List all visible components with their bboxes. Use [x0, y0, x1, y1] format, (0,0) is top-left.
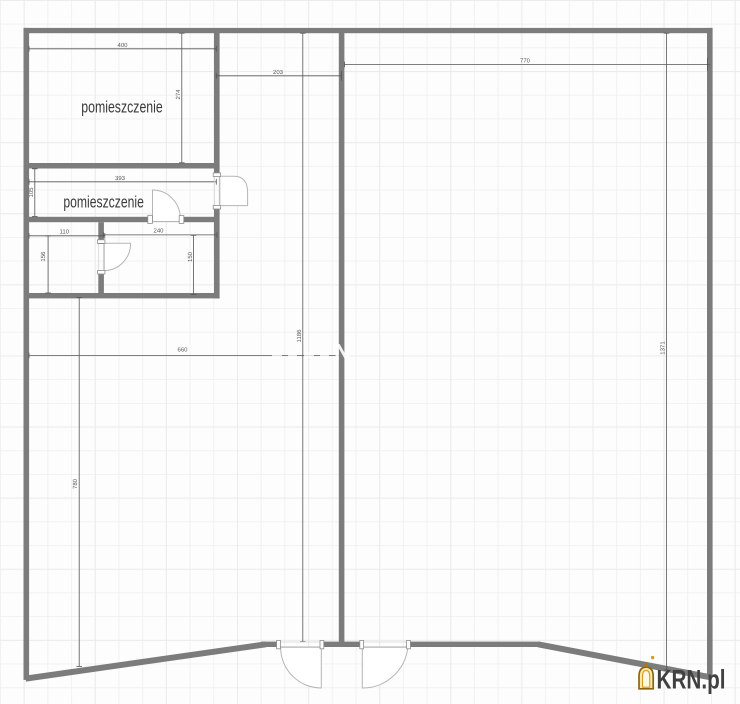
svg-text:105: 105 — [28, 187, 35, 198]
svg-text:1371: 1371 — [660, 341, 667, 355]
svg-text:274: 274 — [175, 89, 182, 100]
svg-text:393: 393 — [115, 175, 126, 182]
svg-text:110: 110 — [60, 229, 70, 236]
svg-text:1186: 1186 — [296, 329, 303, 343]
svg-text:240: 240 — [153, 228, 164, 235]
svg-text:pomieszczenie: pomieszczenie — [81, 98, 163, 117]
svg-text:770: 770 — [520, 58, 531, 65]
svg-text:150: 150 — [187, 251, 194, 262]
svg-text:660: 660 — [177, 347, 188, 354]
svg-text:203: 203 — [273, 69, 284, 76]
svg-text:780: 780 — [72, 478, 79, 489]
svg-text:pomieszczenie: pomieszczenie — [63, 193, 144, 212]
svg-text:156: 156 — [40, 251, 47, 262]
svg-text:KRN.pl: KRN.pl — [657, 665, 726, 695]
svg-text:400: 400 — [117, 42, 128, 49]
svg-text:N: N — [334, 340, 351, 367]
